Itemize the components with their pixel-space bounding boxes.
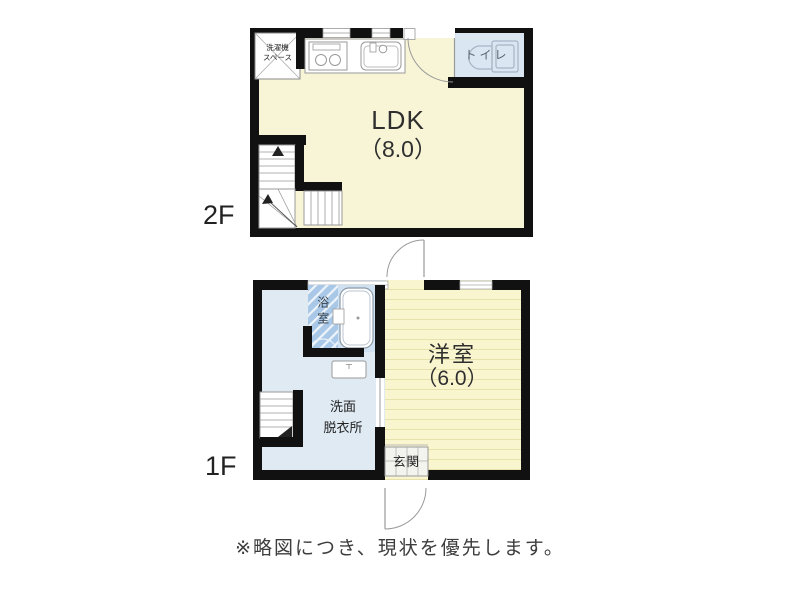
washer-space-label: 洗濯機 スペース (255, 43, 300, 63)
ldk-label: LDK （8.0） (348, 106, 448, 162)
disclaimer-note: ※略図につき、現状を優先します。 (0, 538, 800, 560)
divider-wall-1f (375, 285, 385, 480)
door-1f-top-arc (387, 240, 424, 277)
washroom-label: 洗面 脱衣所 (300, 396, 386, 439)
toilet-label: トイレ (455, 49, 519, 63)
toilet-bottom-wall (448, 77, 533, 88)
bath-faucet-icon (333, 309, 344, 324)
kitchen-sink-icon (361, 42, 401, 70)
western-room-label: 洋室 （6.0） (392, 342, 512, 391)
kitchen-counter (305, 39, 405, 73)
floor-plan-drawing (0, 0, 800, 600)
floor-2f-label: 2F (203, 200, 235, 231)
bathtub-icon (340, 288, 373, 348)
genkan-label: 玄関 (385, 455, 428, 469)
floor-plan-page: 洗濯機 スペース トイレ LDK （8.0） 2F 浴室 洋室 （6.0） 洗面… (0, 0, 800, 600)
window-1f-western (460, 281, 492, 289)
entrance-door-arc (385, 488, 426, 529)
stairs-1f (260, 390, 303, 447)
bathroom (303, 285, 375, 357)
floor-1f-label: 1F (205, 451, 237, 482)
bath-label: 浴室 (315, 296, 329, 348)
washbasin-icon (332, 361, 366, 378)
stove-icon (309, 42, 347, 70)
